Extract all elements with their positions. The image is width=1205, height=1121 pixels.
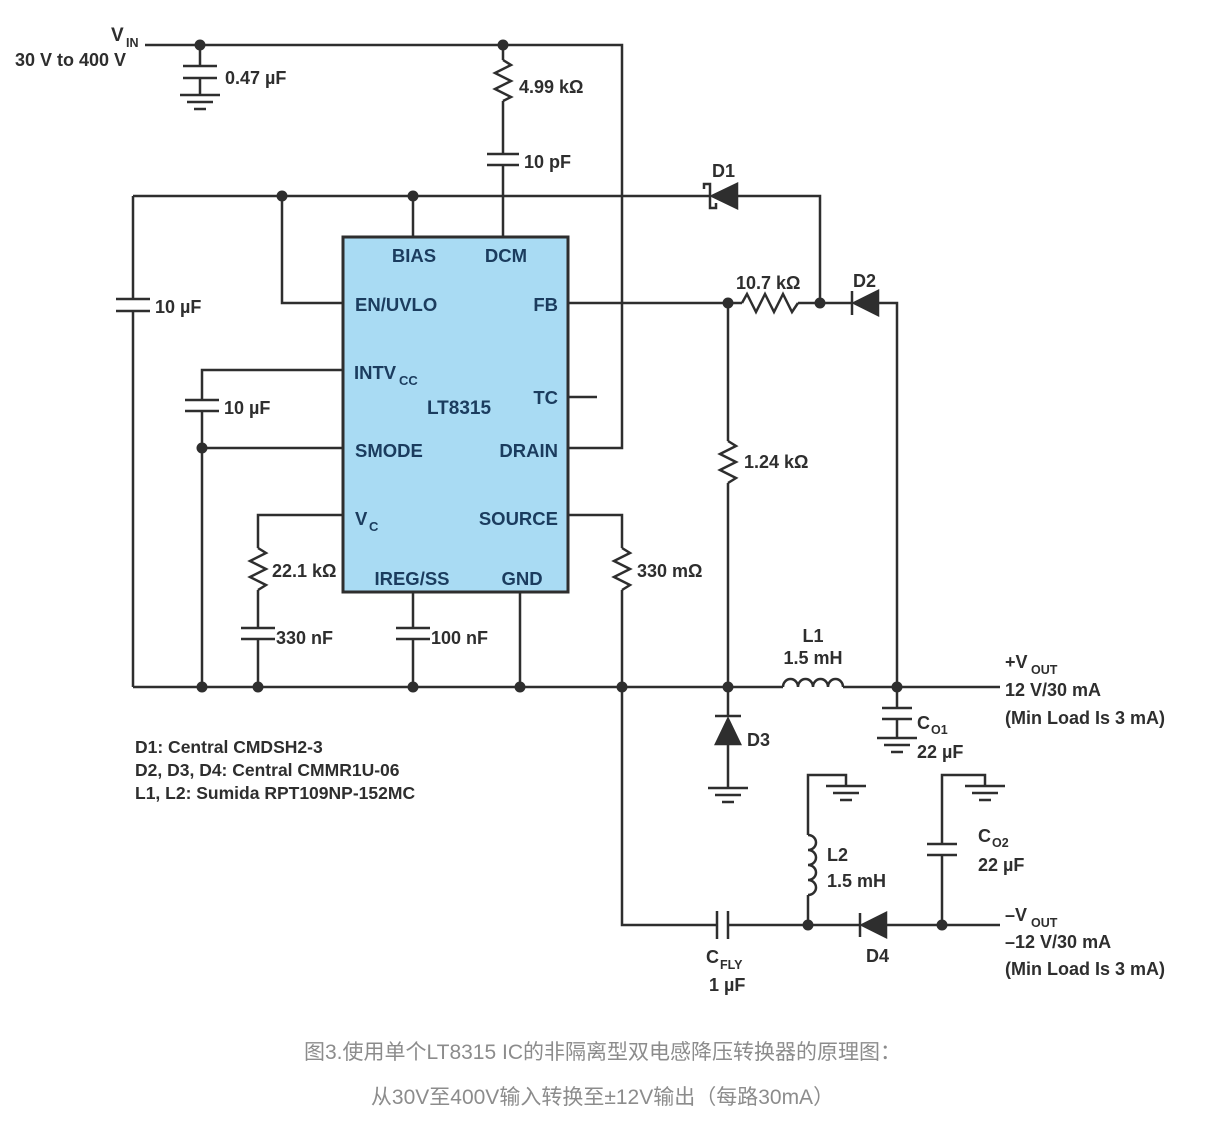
capacitor-100nf <box>396 628 430 639</box>
l2-value: 1.5 mH <box>827 871 886 891</box>
diode-d1 <box>704 184 737 208</box>
junction <box>408 191 419 202</box>
junction <box>515 682 526 693</box>
rfb2-value: 1.24 kΩ <box>744 452 808 472</box>
cdcm-value: 10 pF <box>524 152 571 172</box>
css-value: 100 nF <box>431 628 488 648</box>
pin-gnd-label: GND <box>501 568 542 589</box>
junction <box>277 191 288 202</box>
capacitor-co2 <box>927 844 957 855</box>
wire-vc-branch <box>258 515 343 687</box>
vout-neg-rating: –12 V/30 mA <box>1005 932 1111 952</box>
capacitor-10uf-bias <box>116 299 150 311</box>
inductor-l1 <box>783 679 843 687</box>
cfly-value: 1 µF <box>709 975 745 995</box>
junction <box>723 298 734 309</box>
junction <box>723 682 734 693</box>
capacitor-co1 <box>882 708 912 719</box>
co1-ref: C <box>917 713 930 733</box>
bom-note-d234: D2, D3, D4: Central CMMR1U-06 <box>135 759 415 782</box>
resistor-330m <box>614 548 630 590</box>
co2-ref: C <box>978 826 991 846</box>
junction <box>197 443 208 454</box>
co1-value: 22 µF <box>917 742 963 762</box>
rfb1-value: 10.7 kΩ <box>736 273 800 293</box>
l2-ref: L2 <box>827 845 848 865</box>
capacitor-330nf <box>241 628 275 639</box>
d3-triangle <box>716 719 740 744</box>
diode-d2 <box>852 291 878 315</box>
component-labels: V IN 30 V to 400 V 0.47 µF 4.99 kΩ 10 pF… <box>15 25 1165 995</box>
capacitor-10pf <box>487 154 519 165</box>
ground-co2 <box>965 786 1005 800</box>
pin-bias-label: BIAS <box>392 245 436 266</box>
vout-pos-sub: OUT <box>1031 663 1058 677</box>
wire-co2-branch <box>942 775 985 925</box>
ground-d3 <box>708 788 748 802</box>
junction <box>253 682 264 693</box>
pin-vc-sub: C <box>369 519 379 534</box>
capacitor-10uf-intvcc <box>185 400 219 411</box>
rsense-value: 330 mΩ <box>637 561 702 581</box>
cfly-ref: C <box>706 947 719 967</box>
pin-tc-label: TC <box>533 387 558 408</box>
ground-co1 <box>877 738 917 752</box>
schematic-figure: BIAS DCM EN/UVLO FB INTV CC TC LT8315 SM… <box>0 0 1205 1121</box>
co2-ref-sub: O2 <box>992 836 1009 850</box>
vout-pos-note: (Min Load Is 3 mA) <box>1005 708 1165 728</box>
cbias-value: 10 µF <box>155 297 201 317</box>
ground-cin <box>180 95 220 109</box>
vin-label-sub: IN <box>126 36 139 50</box>
inductor-l2 <box>808 835 816 895</box>
junction <box>195 40 206 51</box>
d4-ref: D4 <box>866 946 889 966</box>
capacitor-cfly <box>717 911 728 939</box>
resistor-1.24k <box>720 441 736 483</box>
pin-source-label: SOURCE <box>479 508 558 529</box>
pin-vc-label: V <box>355 508 368 529</box>
pin-intvcc-sub: CC <box>399 373 418 388</box>
junction <box>892 682 903 693</box>
resistor-22.1k <box>250 548 266 590</box>
pin-dcm-label: DCM <box>485 245 527 266</box>
junction <box>408 682 419 693</box>
co1-ref-sub: O1 <box>931 723 948 737</box>
pin-drain-label: DRAIN <box>499 440 558 461</box>
vout-neg-label: –V <box>1005 905 1027 925</box>
capacitor-cin <box>183 66 217 78</box>
wire-fb-line <box>568 303 897 687</box>
pin-smode-label: SMODE <box>355 440 423 461</box>
junction <box>803 920 814 931</box>
figure-caption-line1: 图3.使用单个LT8315 IC的非隔离型双电感降压转换器的原理图： <box>0 1036 1205 1066</box>
d3-ref: D3 <box>747 730 770 750</box>
bom-note-d1: D1: Central CMDSH2-3 <box>135 736 415 759</box>
vin-range-label: 30 V to 400 V <box>15 50 126 70</box>
bom-note-l1l2: L1, L2: Sumida RPT109NP-152MC <box>135 782 415 805</box>
junction <box>617 682 628 693</box>
cfly-ref-sub: FLY <box>720 958 743 972</box>
vout-neg-note: (Min Load Is 3 mA) <box>1005 959 1165 979</box>
ic-part-number: LT8315 <box>427 398 492 419</box>
d1-ref: D1 <box>712 161 735 181</box>
cvc-value: 330 nF <box>276 628 333 648</box>
l1-value: 1.5 mH <box>783 648 842 668</box>
pin-enuvlo-label: EN/UVLO <box>355 294 437 315</box>
junction <box>937 920 948 931</box>
vout-pos-label: +V <box>1005 652 1028 672</box>
cintvcc-value: 10 µF <box>224 398 270 418</box>
d2-triangle <box>854 291 878 315</box>
resistor-10.7k <box>742 294 798 312</box>
rdcm-value: 4.99 kΩ <box>519 77 583 97</box>
wire-en-uvlo <box>282 196 343 303</box>
circuit-canvas: BIAS DCM EN/UVLO FB INTV CC TC LT8315 SM… <box>0 0 1205 1121</box>
diode-d4 <box>860 913 886 937</box>
bom-notes: D1: Central CMDSH2-3 D2, D3, D4: Central… <box>135 736 415 805</box>
vin-label: V <box>111 25 124 46</box>
d2-ref: D2 <box>853 271 876 291</box>
vout-pos-rating: 12 V/30 mA <box>1005 680 1101 700</box>
cin-value: 0.47 µF <box>225 68 286 88</box>
l1-ref: L1 <box>802 626 823 646</box>
figure-caption-line2: 从30V至400V输入转换至±12V输出（每路30mA） <box>0 1081 1205 1111</box>
co2-value: 22 µF <box>978 855 1024 875</box>
junction <box>815 298 826 309</box>
diode-d3 <box>715 716 741 744</box>
d4-triangle <box>862 913 886 937</box>
pin-iregss-label: IREG/SS <box>374 568 449 589</box>
pin-fb-label: FB <box>533 294 558 315</box>
wire-source-branch <box>568 515 1000 925</box>
rvc-value: 22.1 kΩ <box>272 561 336 581</box>
ground-l2 <box>826 786 866 800</box>
junction <box>498 40 509 51</box>
pin-intvcc-label: INTV <box>354 362 397 383</box>
junction <box>197 682 208 693</box>
resistor-4.99k <box>495 60 511 101</box>
vout-neg-sub: OUT <box>1031 916 1058 930</box>
